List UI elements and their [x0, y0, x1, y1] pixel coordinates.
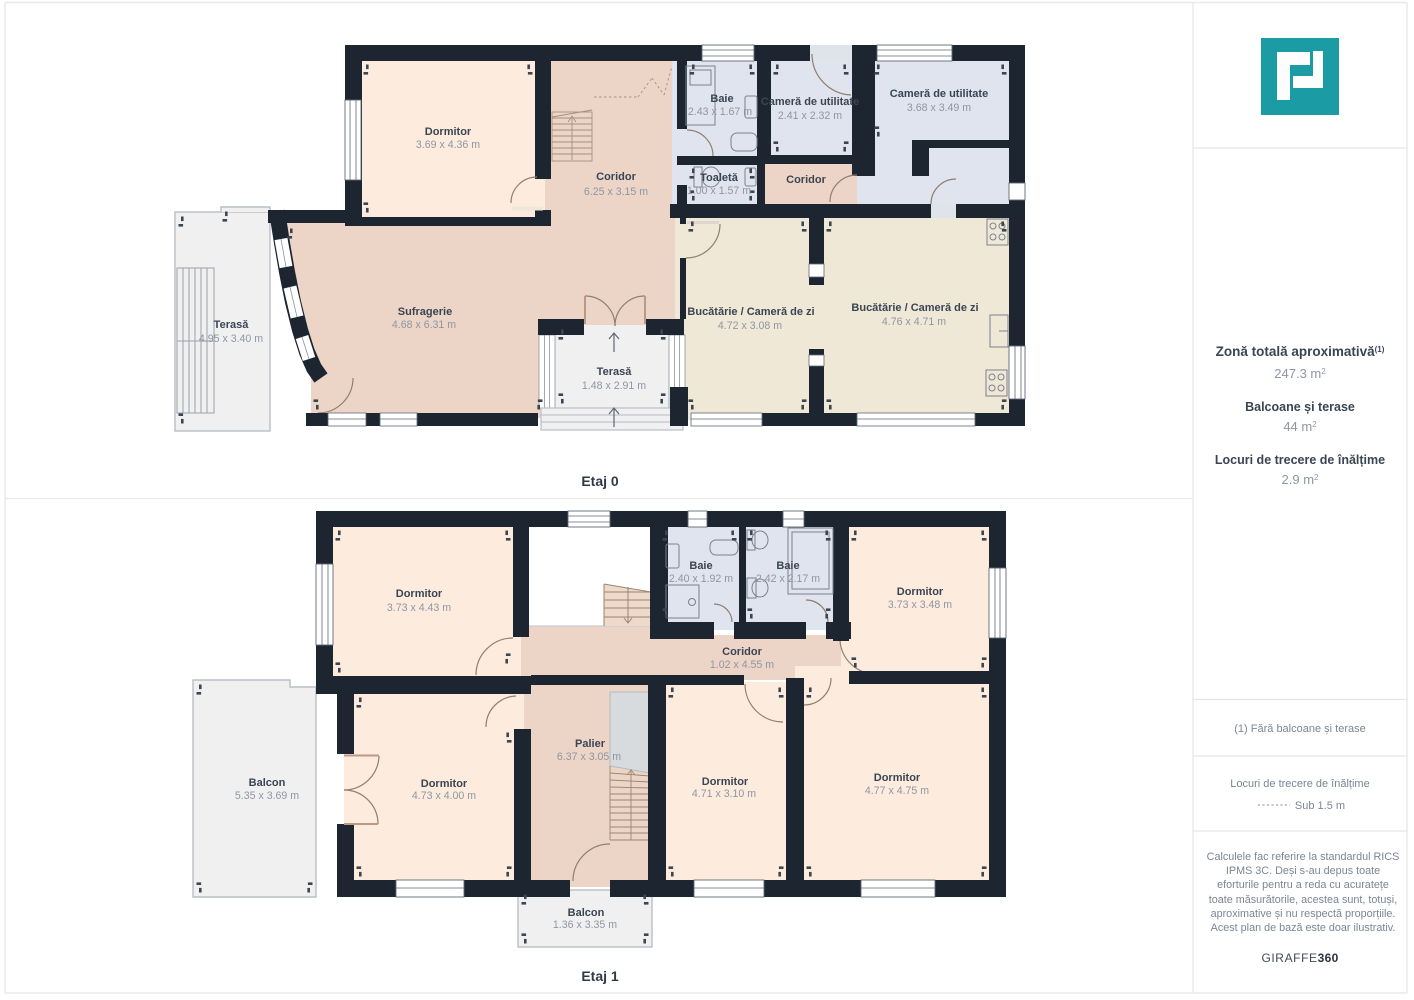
- svg-text:6.25 x 3.15 m: 6.25 x 3.15 m: [584, 186, 648, 198]
- svg-text:Locuri de trecere de înălțime: Locuri de trecere de înălțime: [1215, 453, 1385, 467]
- svg-text:4.68 x 6.31 m: 4.68 x 6.31 m: [392, 319, 456, 331]
- svg-text:Coridor: Coridor: [596, 171, 636, 183]
- svg-text:44 m2: 44 m2: [1283, 419, 1317, 434]
- svg-text:2.9 m2: 2.9 m2: [1282, 472, 1320, 487]
- svg-text:4.76 x 4.71 m: 4.76 x 4.71 m: [882, 316, 946, 328]
- svg-text:Etaj 0: Etaj 0: [581, 473, 619, 489]
- svg-text:2.40 x 1.92 m: 2.40 x 1.92 m: [669, 573, 733, 585]
- svg-text:Cameră de utilitate: Cameră de utilitate: [761, 96, 859, 108]
- svg-text:2.43 x 1.67 m: 2.43 x 1.67 m: [688, 106, 752, 118]
- svg-text:4.95 x 3.40 m: 4.95 x 3.40 m: [199, 333, 263, 345]
- svg-text:Calculele fac referire la stan: Calculele fac referire la standardul RIC…: [1207, 851, 1400, 863]
- svg-text:Dormitor: Dormitor: [396, 588, 443, 600]
- svg-text:toate măsurătorile, acestea su: toate măsurătorile, acestea sunt, totuși…: [1209, 894, 1397, 906]
- svg-text:GIRAFFE360: GIRAFFE360: [1261, 951, 1338, 965]
- svg-text:Baie: Baie: [689, 560, 712, 572]
- svg-text:Sub 1.5 m: Sub 1.5 m: [1295, 800, 1345, 812]
- svg-text:Baie: Baie: [776, 560, 799, 572]
- svg-text:4.72 x 3.08 m: 4.72 x 3.08 m: [718, 320, 782, 332]
- svg-text:Etaj 1: Etaj 1: [581, 968, 619, 984]
- svg-text:Bucătărie / Cameră de zi: Bucătărie / Cameră de zi: [687, 306, 814, 318]
- svg-text:(1) Fără balcoane și terase: (1) Fără balcoane și terase: [1234, 723, 1365, 735]
- svg-text:Balcoane și terase: Balcoane și terase: [1245, 400, 1355, 414]
- svg-text:Dormitor: Dormitor: [421, 778, 468, 790]
- svg-text:1.48 x 2.91 m: 1.48 x 2.91 m: [582, 380, 646, 392]
- svg-text:5.35 x 3.69 m: 5.35 x 3.69 m: [235, 790, 299, 802]
- svg-text:Bucătărie / Cameră de zi: Bucătărie / Cameră de zi: [851, 302, 978, 314]
- svg-text:Balcon: Balcon: [568, 907, 605, 919]
- svg-text:3.68 x 3.49 m: 3.68 x 3.49 m: [907, 102, 971, 114]
- svg-text:4.73 x 4.00 m: 4.73 x 4.00 m: [412, 790, 476, 802]
- svg-text:Palier: Palier: [575, 738, 606, 750]
- svg-text:Acest plan de bază este doar i: Acest plan de bază este doar ilustrativ.: [1211, 922, 1396, 934]
- svg-text:Dormitor: Dormitor: [425, 126, 472, 138]
- svg-text:aproximative și nu respectă pr: aproximative și nu respectă proporțiile.: [1211, 908, 1396, 920]
- svg-text:Terasă: Terasă: [597, 366, 633, 378]
- svg-text:6.37 x 3.05 m: 6.37 x 3.05 m: [557, 751, 621, 763]
- svg-text:2.42 x 2.17 m: 2.42 x 2.17 m: [756, 573, 820, 585]
- svg-text:Cameră de utilitate: Cameră de utilitate: [890, 88, 988, 100]
- svg-text:eforturile pentru a reda cu ac: eforturile pentru a reda cu acuratețe: [1217, 879, 1389, 891]
- svg-text:4.77 x 4.75 m: 4.77 x 4.75 m: [865, 785, 929, 797]
- svg-text:Dormitor: Dormitor: [897, 586, 944, 598]
- svg-text:1.36 x 3.35 m: 1.36 x 3.35 m: [553, 919, 617, 931]
- svg-text:Dormitor: Dormitor: [702, 776, 749, 788]
- svg-text:Dormitor: Dormitor: [874, 772, 921, 784]
- svg-text:3.69 x 4.36 m: 3.69 x 4.36 m: [416, 139, 480, 151]
- svg-text:Baie: Baie: [710, 93, 733, 105]
- svg-text:Sufragerie: Sufragerie: [398, 306, 452, 318]
- svg-text:IPMS 3C. Deși s-au depus toate: IPMS 3C. Deși s-au depus toate: [1226, 865, 1380, 877]
- svg-text:Locuri de trecere de înălțime: Locuri de trecere de înălțime: [1230, 778, 1369, 790]
- svg-text:Zonă totală aproximativă(1): Zonă totală aproximativă(1): [1216, 344, 1385, 359]
- svg-text:3.73 x 3.48 m: 3.73 x 3.48 m: [888, 599, 952, 611]
- svg-text:Coridor: Coridor: [722, 646, 762, 658]
- svg-text:1.02 x 4.55 m: 1.02 x 4.55 m: [710, 659, 774, 671]
- svg-text:3.73 x 4.43 m: 3.73 x 4.43 m: [387, 602, 451, 614]
- svg-text:Toaletă: Toaletă: [700, 172, 739, 184]
- svg-text:1.00 x 1.57 m: 1.00 x 1.57 m: [687, 185, 751, 197]
- svg-text:Coridor: Coridor: [786, 174, 826, 186]
- svg-text:247.3 m2: 247.3 m2: [1274, 366, 1326, 381]
- svg-text:Terasă: Terasă: [214, 319, 250, 331]
- svg-text:4.71 x 3.10 m: 4.71 x 3.10 m: [692, 788, 756, 800]
- svg-text:Balcon: Balcon: [249, 777, 286, 789]
- svg-text:2.41 x 2.32 m: 2.41 x 2.32 m: [778, 110, 842, 122]
